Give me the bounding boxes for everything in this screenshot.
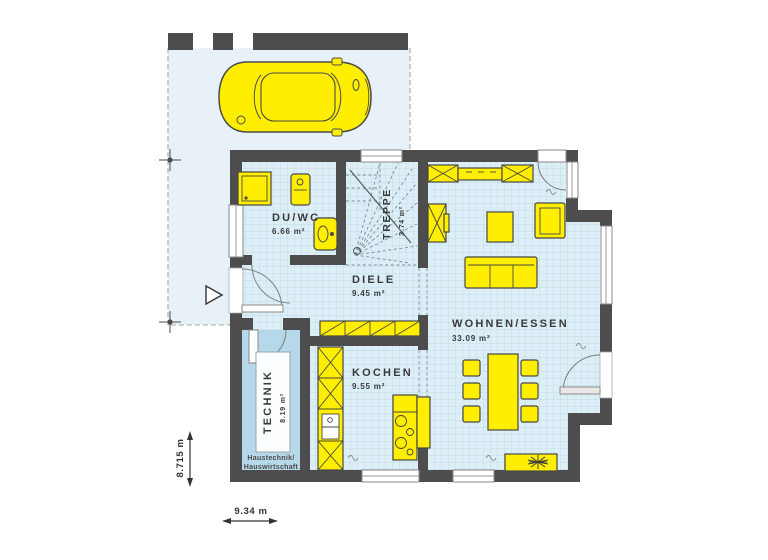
room-area-kochen: 9.55 m² [352, 382, 385, 391]
window [229, 205, 243, 257]
room-label-wohnen-essen: WOHNEN/ESSEN [452, 318, 569, 330]
room-label-diele: DIELE [352, 274, 395, 286]
technik-note-line2: Hauswirtschaft [244, 464, 299, 471]
coffee-table [487, 212, 513, 242]
window [361, 150, 402, 162]
room-area-treppe: 3.74 m² [399, 206, 406, 236]
floor-plan-page: DU/WC 6.66 m² TREPPE 3.74 m² DIELE 9.45 … [0, 0, 768, 560]
room-area-wohnen-essen: 33.09 m² [452, 334, 490, 343]
chair [521, 406, 538, 422]
chair [521, 360, 538, 376]
dimension-width: 9.34 m [222, 506, 278, 524]
washbasin-icon [291, 174, 310, 205]
chair [463, 406, 480, 422]
plant-sideboard [505, 454, 557, 471]
shower-icon [238, 172, 271, 205]
armchair [535, 203, 565, 238]
room-label-treppe: TREPPE [381, 188, 393, 240]
window [453, 470, 494, 482]
window [362, 470, 419, 482]
room-area-duwc: 6.66 m² [272, 227, 305, 236]
chair [463, 383, 480, 399]
room-label-technik: TECHNIK [262, 370, 274, 434]
sofa [465, 257, 537, 288]
tv-board [428, 204, 449, 242]
chair [463, 360, 480, 376]
room-area-technik: 8.19 m² [280, 393, 287, 423]
car-icon [219, 58, 371, 136]
sideboard-row [428, 165, 533, 182]
floor-plan-canvas: DU/WC 6.66 m² TREPPE 3.74 m² DIELE 9.45 … [0, 0, 768, 560]
window [601, 226, 612, 304]
kitchen-sink-icon [322, 414, 339, 439]
dimension-height: 8.715 m [175, 431, 193, 487]
kitchen-counter [318, 347, 343, 470]
dimension-width-label: 9.34 m [234, 506, 267, 517]
room-area-diele: 9.45 m² [352, 289, 385, 298]
potted-plant-icon [528, 455, 548, 469]
carport-wall [168, 33, 408, 50]
dimension-height-label: 8.715 m [175, 438, 186, 477]
wardrobe [320, 321, 420, 336]
dining-table [488, 354, 518, 430]
room-label-duwc: DU/WC [272, 212, 320, 224]
technik-note-line1: Haustechnik/ [247, 455, 294, 462]
room-label-kochen: KOCHEN [352, 367, 413, 379]
chair [521, 383, 538, 399]
window [567, 162, 578, 198]
